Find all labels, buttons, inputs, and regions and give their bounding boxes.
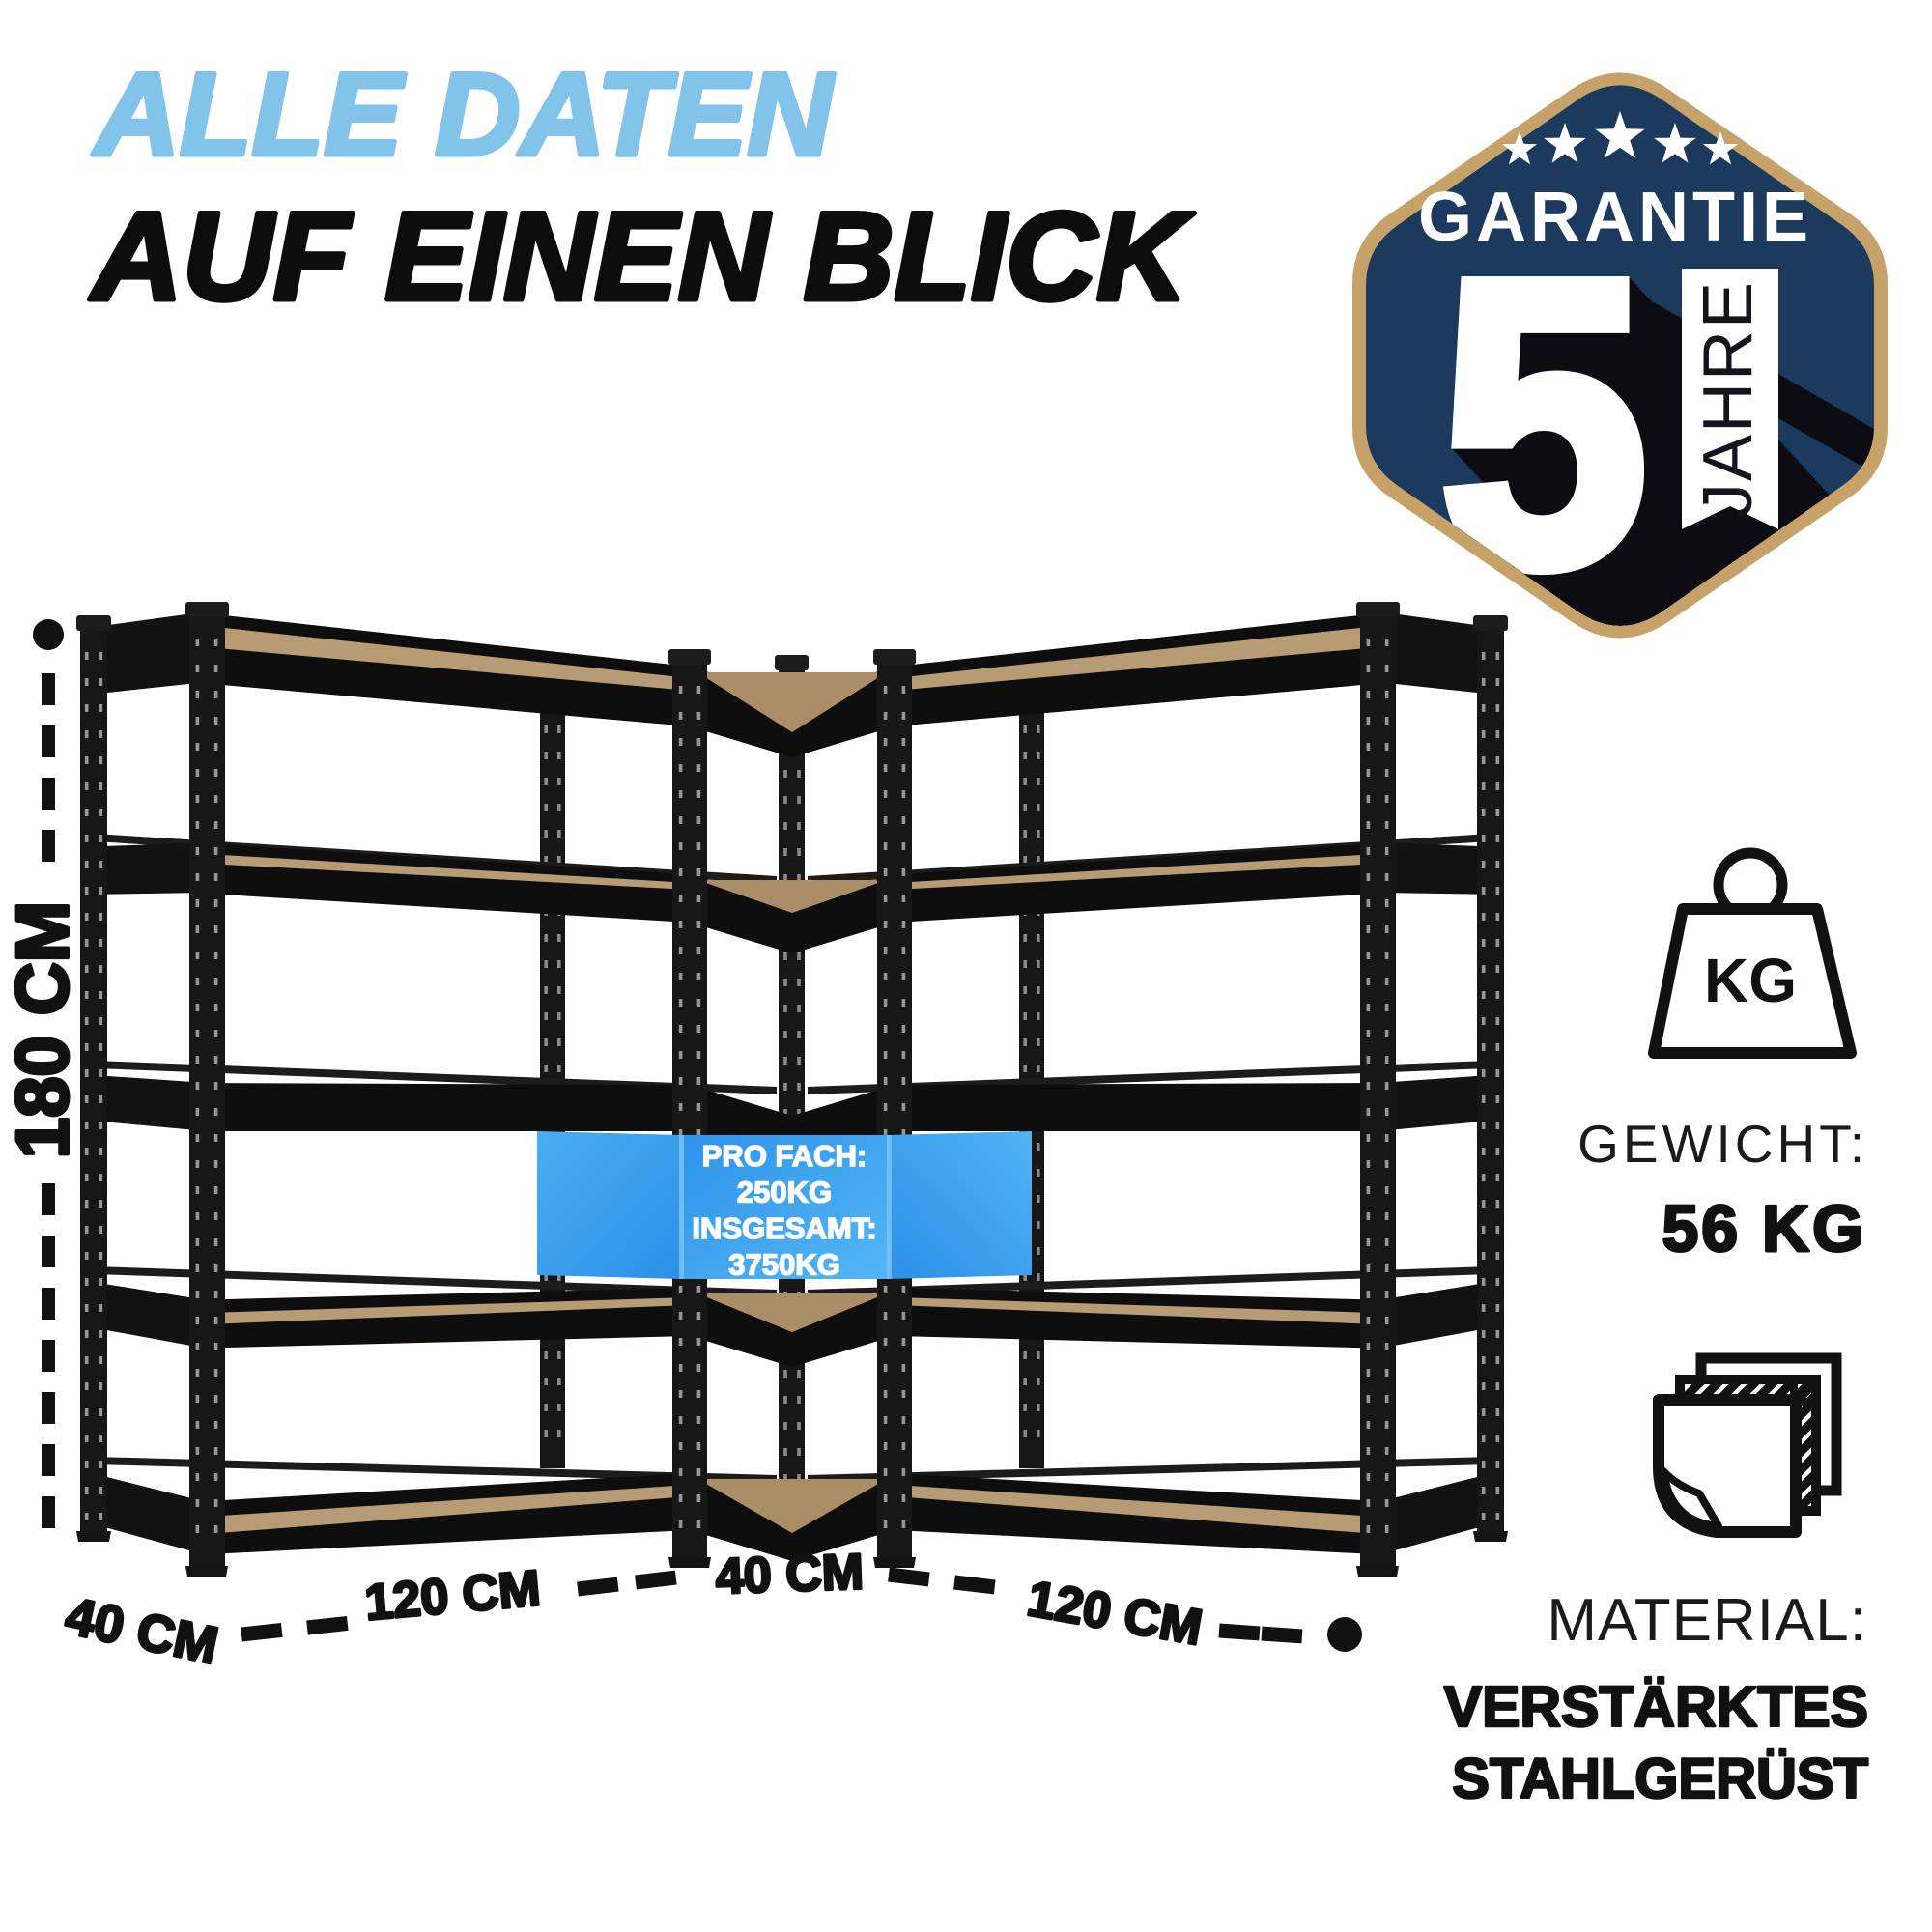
svg-text:40 CM: 40 CM [61,1587,223,1676]
svg-text:120 CM: 120 CM [362,1560,542,1632]
svg-text:STAHLGERÜST: STAHLGERÜST [1452,1747,1868,1810]
svg-text:180 CM: 180 CM [2,901,84,1158]
svg-text:AUF EINEN BLICK: AUF EINEN BLICK [89,185,1195,327]
svg-text:INSGESAMT:: INSGESAMT: [692,1211,876,1245]
svg-text:5: 5 [1440,196,1648,649]
svg-text:KG: KG [1704,946,1797,1015]
svg-text:56 KG: 56 KG [1662,1192,1866,1265]
svg-text:250KG: 250KG [737,1176,832,1209]
svg-text:JAHRE: JAHRE [1690,280,1767,518]
svg-text:MATERIAL:: MATERIAL: [1547,1587,1867,1654]
svg-text:ALLE DATEN: ALLE DATEN [92,48,835,180]
svg-text:VERSTÄRKTES: VERSTÄRKTES [1444,1675,1868,1739]
svg-text:PRO FACH:: PRO FACH: [702,1139,867,1173]
svg-text:40 CM: 40 CM [715,1544,865,1605]
svg-text:3750KG: 3750KG [728,1248,839,1282]
svg-text:GARANTIE: GARANTIE [1418,179,1812,256]
svg-text:120 CM: 120 CM [1023,1571,1206,1657]
svg-text:GEWICHT:: GEWICHT: [1577,1114,1868,1174]
